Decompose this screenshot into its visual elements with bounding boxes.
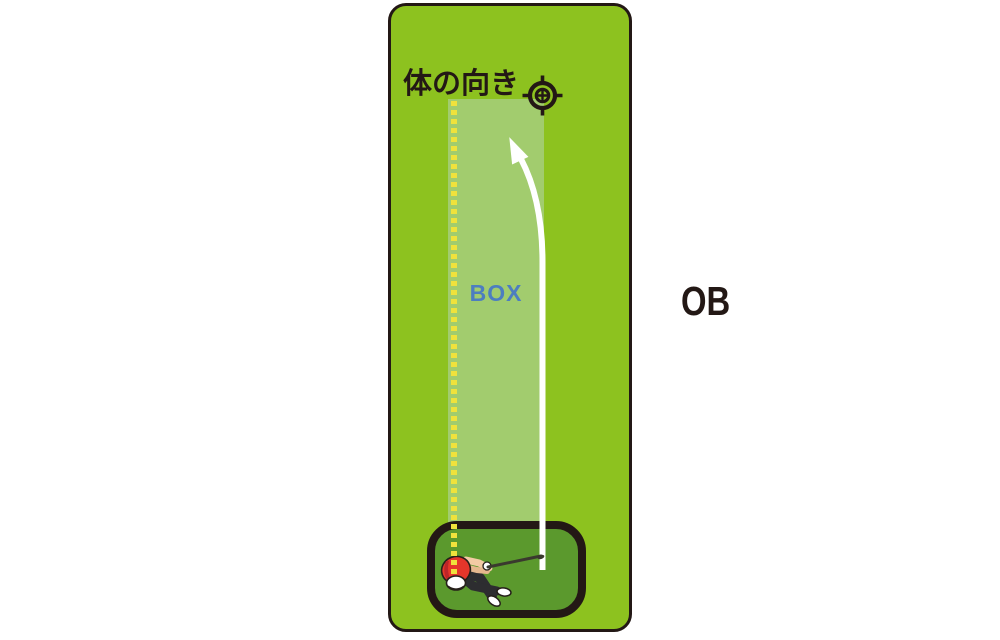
alignment-dotted-line	[451, 101, 457, 576]
ball-flight-arrow	[501, 133, 542, 570]
golf-diagram: BOX	[0, 0, 1000, 640]
ob-label: OB	[681, 278, 730, 325]
target-crosshair-icon	[523, 76, 563, 116]
body-direction-label: 体の向き	[403, 60, 519, 102]
